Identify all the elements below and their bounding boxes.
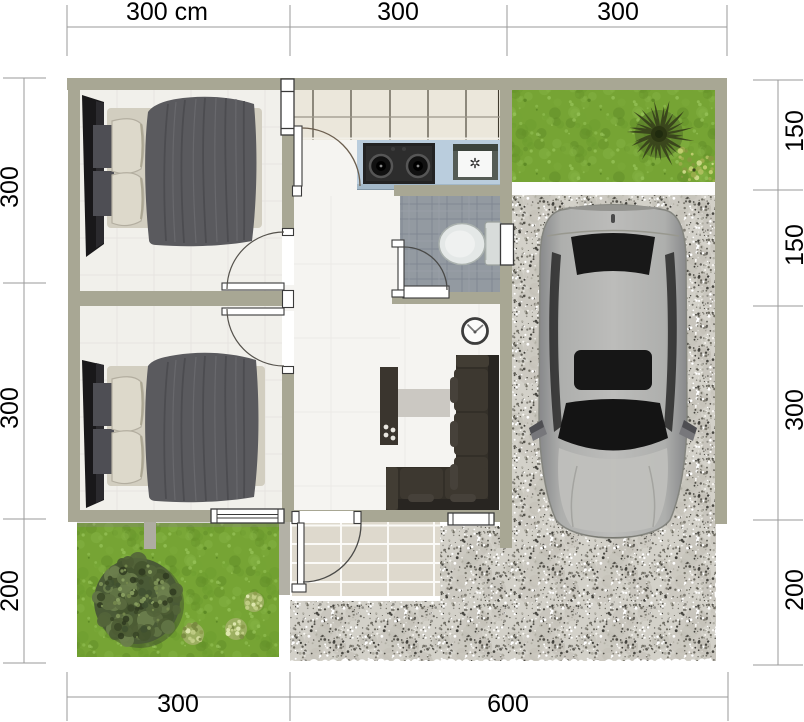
svg-text:200: 200: [0, 570, 24, 612]
svg-text:300: 300: [0, 387, 24, 429]
svg-text:200: 200: [781, 569, 804, 611]
svg-text:300: 300: [597, 0, 639, 26]
svg-text:150: 150: [781, 110, 804, 152]
svg-text:300: 300: [157, 690, 199, 718]
svg-text:150: 150: [781, 224, 804, 266]
svg-text:300: 300: [377, 0, 419, 26]
svg-text:300: 300: [781, 389, 804, 431]
svg-text:300 cm: 300 cm: [126, 0, 208, 26]
svg-text:600: 600: [487, 690, 529, 718]
svg-text:300: 300: [0, 166, 24, 208]
